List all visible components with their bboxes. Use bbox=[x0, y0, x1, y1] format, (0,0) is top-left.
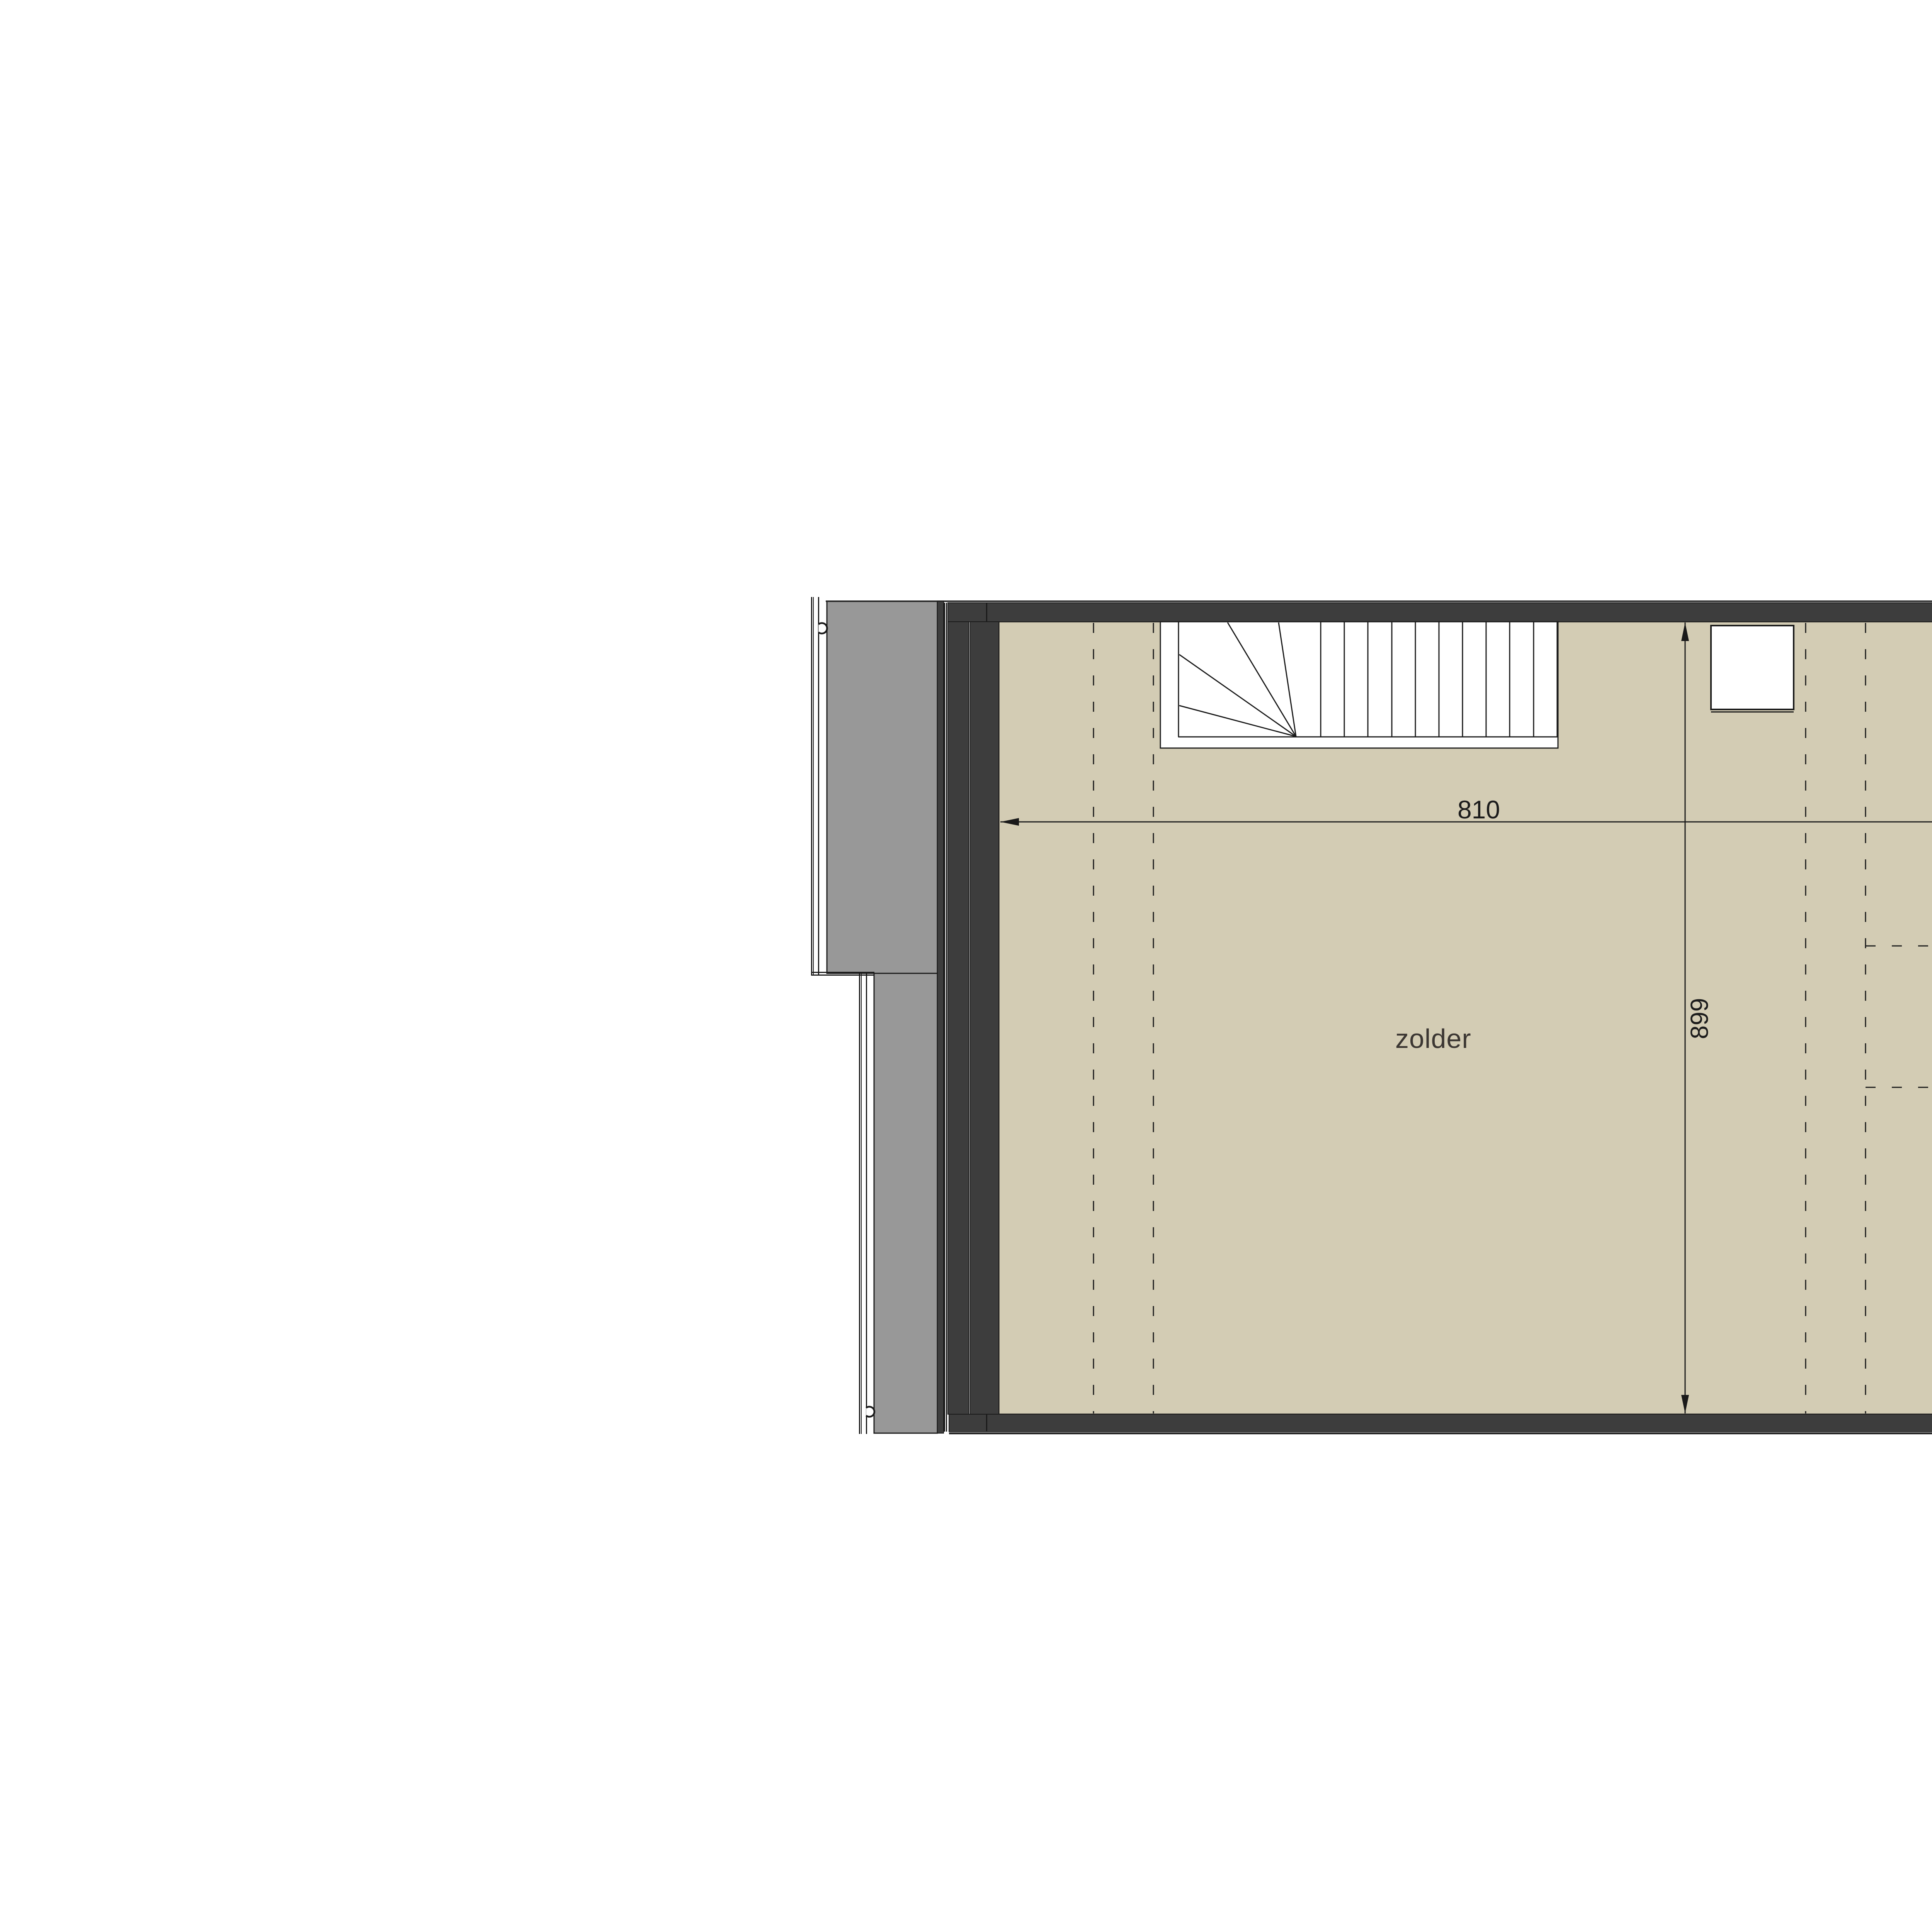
svg-text:899: 899 bbox=[1685, 998, 1713, 1039]
svg-text:810: 810 bbox=[1458, 795, 1500, 824]
svg-text:zolder: zolder bbox=[1395, 1024, 1471, 1054]
